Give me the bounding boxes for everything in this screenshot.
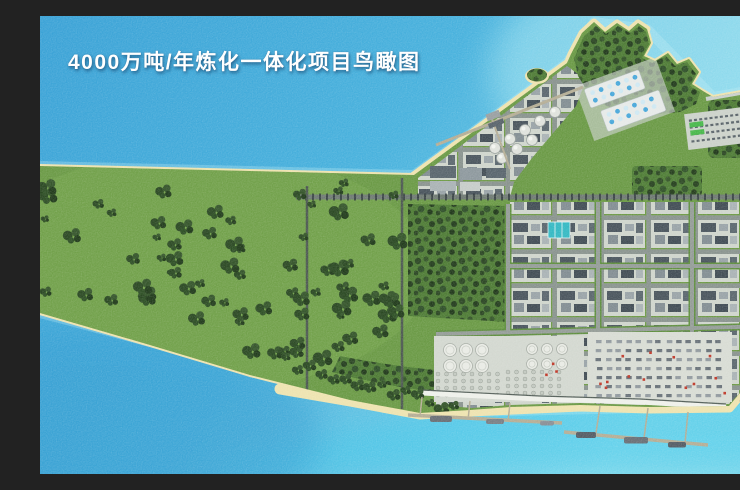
aerial-render: 4000万吨/年炼化一体化项目鸟瞰图 [40,16,740,474]
aerial-view-canvas [40,16,740,474]
texture-overlay [40,16,740,474]
page-title: 4000万吨/年炼化一体化项目鸟瞰图 [68,46,421,76]
